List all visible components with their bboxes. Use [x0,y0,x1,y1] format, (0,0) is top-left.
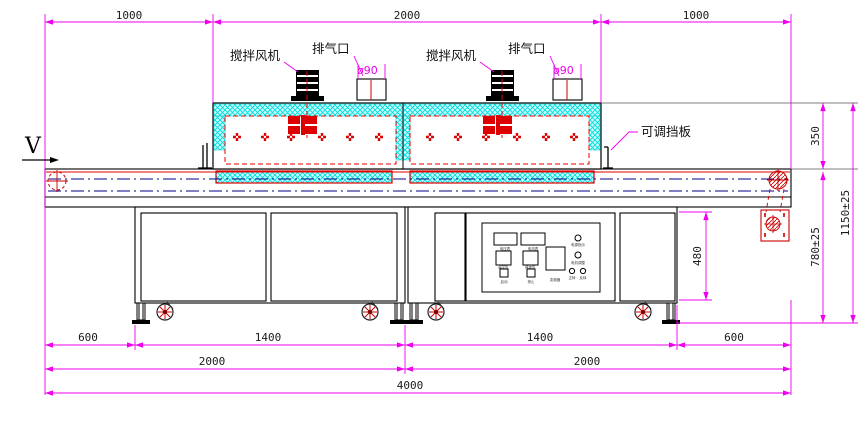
oven-conveyor-diagram: 电压表 电流表 电源指示 温控仪 调速仪 变频器 电机调整 正转 反转 启动 停… [0,0,867,422]
voltmeter-label: 电压表 [500,246,511,251]
right-cabinet-door-3 [620,213,675,301]
belt-direction: V [22,134,59,163]
exhaust-stack-right [553,79,582,100]
dim-total-height: 1150±25 [839,190,852,236]
direction-arrow-icon [50,157,59,163]
fan-label-right: 搅拌风机 [426,48,477,63]
temp-controller[interactable] [496,251,511,265]
fwd-lamp[interactable] [569,268,574,273]
rev-lamp-label: 反转 [580,275,588,280]
dim-top-left: 1000 [116,9,143,22]
dim-cabinet-height: 480 [691,246,704,266]
right-cabinet-door-1 [435,213,465,301]
motor-group-label: 电机调整 [571,260,585,265]
outlet-baffle [603,147,613,168]
dim-top-right: 1000 [683,9,710,22]
dim-1400-right: 1400 [527,331,554,344]
dim-top-mid: 2000 [394,9,421,22]
dim-1400-left: 1400 [255,331,282,344]
dim-4000-total: 4000 [397,379,424,392]
power-lamp-label: 电源指示 [571,242,585,247]
speed-controller[interactable] [523,251,538,265]
control-panel: 电压表 电流表 电源指示 温控仪 调速仪 变频器 电机调整 正转 反转 启动 停… [482,223,600,292]
fwd-lamp-label: 正转 [569,275,577,280]
direction-label: V [24,134,42,159]
feet-and-casters [132,302,680,324]
rev-lamp[interactable] [580,268,585,273]
left-cabinet-door-1 [141,213,266,301]
machine-drawing: 电压表 电流表 电源指示 温控仪 调速仪 变频器 电机调整 正转 反转 启动 停… [0,0,867,422]
heat-lamp[interactable] [575,252,581,258]
inlet-baffle [198,143,212,168]
exhaust-label-left: 排气口 [312,41,350,56]
baffle-label: 可调挡板 [641,124,692,139]
start-button-label: 启动 [501,279,509,284]
start-button[interactable] [500,269,508,277]
dim-table-height: 780±25 [809,227,822,267]
exhaust-diameter-left: ø90 [357,64,378,77]
exhaust-label-right: 排气口 [508,41,546,56]
stop-button-label: 停止 [528,279,536,284]
ammeter-label: 电流表 [528,246,539,251]
dim-oven-height: 350 [809,126,822,146]
power-lamp[interactable] [575,235,581,241]
speed-controller-label: 调速仪 [525,264,536,269]
inverter-label: 变频器 [550,277,561,282]
stop-button[interactable] [527,269,535,277]
inverter[interactable] [546,247,565,270]
temp-controller-label: 温控仪 [498,264,509,269]
dim-600-right: 600 [724,331,744,344]
left-cabinet-door-2 [271,213,397,301]
exhaust-diameter-right: ø90 [553,64,574,77]
dim-2000-right: 2000 [574,355,601,368]
dim-2000-left: 2000 [199,355,226,368]
exhaust-stack-left [357,79,386,100]
dim-600-left: 600 [78,331,98,344]
ammeter [521,233,545,245]
voltmeter [494,233,517,245]
fan-label-left: 搅拌风机 [230,48,281,63]
